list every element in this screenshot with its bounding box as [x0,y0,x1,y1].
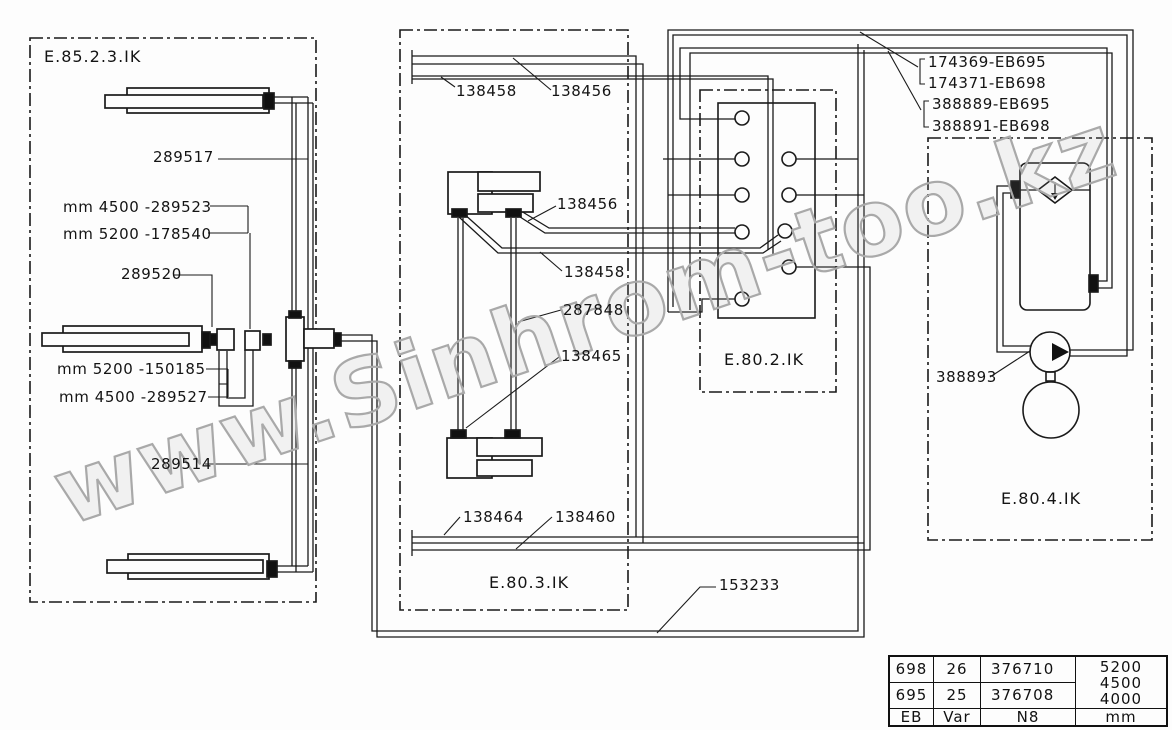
part-label-289523: mm 4500 -289523 [63,199,212,216]
part-label-289527: mm 4500 -289527 [59,389,208,406]
part-label-388893: 388893 [936,369,997,386]
table-cell-eb-695: 695 [890,683,934,709]
part-label-138458-top: 138458 [456,83,517,100]
part-label-153233: 153233 [719,577,780,594]
schematic-page: www.Sinhrom-too.kz E.85.2.3.IK E.80.3.IK… [0,0,1172,730]
middle-panel-pipes [412,50,870,556]
part-label-388889: 388889-EB695 [932,96,1050,113]
valve-blocks [447,172,542,478]
part-label-138465: 138465 [561,348,622,365]
table-cell-mm-merged: 5200 4500 4000 [1076,657,1166,709]
part-label-174371: 174371-EB698 [928,75,1046,92]
valve-port-panel [718,103,815,318]
panel-label-valves: E.80.2.IK [724,351,804,369]
part-label-138458-mid: 138458 [564,264,625,281]
part-label-138456-mid: 138456 [557,196,618,213]
part-label-138456-top: 138456 [551,83,612,100]
part-label-289517: 289517 [153,149,214,166]
part-label-138460: 138460 [555,509,616,526]
part-label-178540: mm 5200 -178540 [63,226,212,243]
panel-label-right: E.80.4.IK [1001,490,1081,508]
table-cell-var-25: 25 [934,683,981,709]
part-label-150185: mm 5200 -150185 [57,361,206,378]
part-label-289514: 289514 [151,456,212,473]
mm-value-5200: 5200 [1100,659,1142,675]
right-panel [997,163,1098,438]
part-label-174369: 174369-EB695 [928,54,1046,71]
part-label-138464: 138464 [463,509,524,526]
variant-table: 698 26 376710 5200 4500 4000 695 25 3767… [888,655,1168,727]
table-header-mm: mm [1076,709,1166,725]
table-header-var: Var [934,709,981,725]
mm-value-4500: 4500 [1100,675,1142,691]
table-cell-n-376708: 376708 [981,683,1076,709]
panel-label-middle: E.80.3.IK [489,574,569,592]
table-cell-n-376710: 376710 [981,657,1076,683]
mm-value-4000: 4000 [1100,691,1142,707]
table-header-eb: EB [890,709,934,725]
part-label-289520: 289520 [121,266,182,283]
table-cell-var-26: 26 [934,657,981,683]
panel-label-left: E.85.2.3.IK [44,48,141,66]
table-cell-eb-698: 698 [890,657,934,683]
table-header-n: N8 [981,709,1076,725]
part-label-388891: 388891-EB698 [932,118,1050,135]
part-label-287848: 287848 [563,302,624,319]
